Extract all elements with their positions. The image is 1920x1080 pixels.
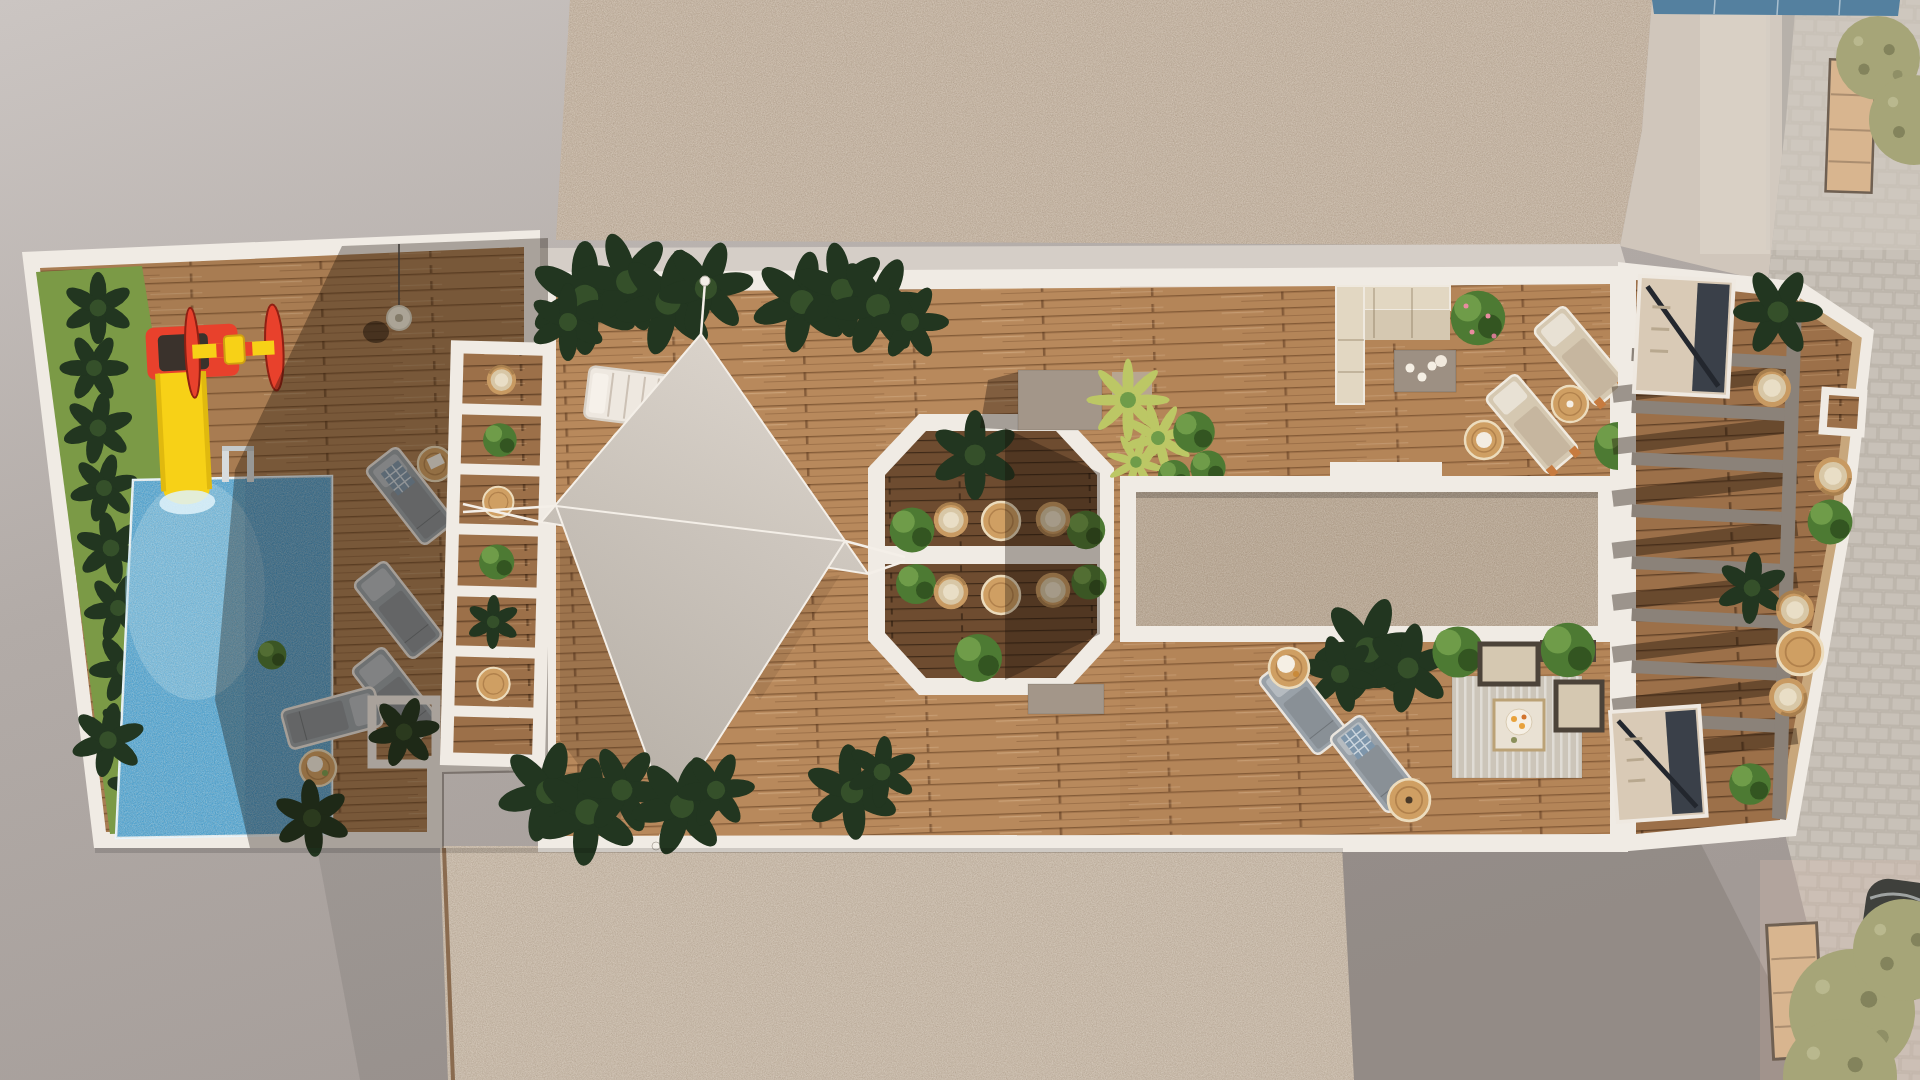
octagon-bush	[896, 564, 936, 604]
solar-panel-strip	[1652, 0, 1900, 16]
roof-hatch-lower	[1028, 684, 1104, 714]
octagon-bush	[954, 634, 1002, 682]
cup	[1293, 671, 1299, 677]
ladder-chair	[488, 366, 514, 394]
love-seat	[1480, 644, 1538, 684]
towel-roll	[1277, 655, 1295, 673]
rooftop-render	[0, 0, 1920, 1080]
octagon-dining-nook	[868, 410, 1114, 695]
cup	[1406, 797, 1413, 804]
pergola-bush	[1808, 500, 1853, 545]
flower-bush	[1451, 291, 1505, 345]
stairwell-canopy-lower	[1610, 706, 1707, 822]
skylight-gravel-bed	[1120, 462, 1614, 642]
stairwell-canopy-upper	[1634, 276, 1734, 397]
sail-pole	[700, 276, 710, 286]
octagon-bush	[890, 508, 935, 553]
tray	[1476, 432, 1492, 448]
white-frame-table	[1818, 386, 1867, 437]
upper-gravel-roof	[556, 0, 1652, 246]
sofa-arm	[1336, 286, 1364, 404]
planter-bush	[1432, 626, 1483, 677]
pergola-planter-ladder	[447, 347, 550, 761]
square-coffee-table	[1494, 700, 1544, 750]
cup	[1567, 401, 1574, 408]
aerial-terrace-scene	[0, 0, 1920, 1080]
planter-bush	[1541, 623, 1595, 677]
pergola-bush	[1729, 763, 1771, 805]
armchair	[1556, 682, 1602, 730]
building-wall-strip	[1700, 2, 1770, 254]
coffee-table	[1394, 350, 1456, 392]
lower-gravel-roof	[440, 846, 1354, 1080]
terrace-edge-shadow	[95, 848, 1343, 853]
lounge-sitting-set	[1432, 623, 1602, 778]
round-table	[1777, 629, 1823, 675]
ladder-table	[477, 667, 510, 700]
